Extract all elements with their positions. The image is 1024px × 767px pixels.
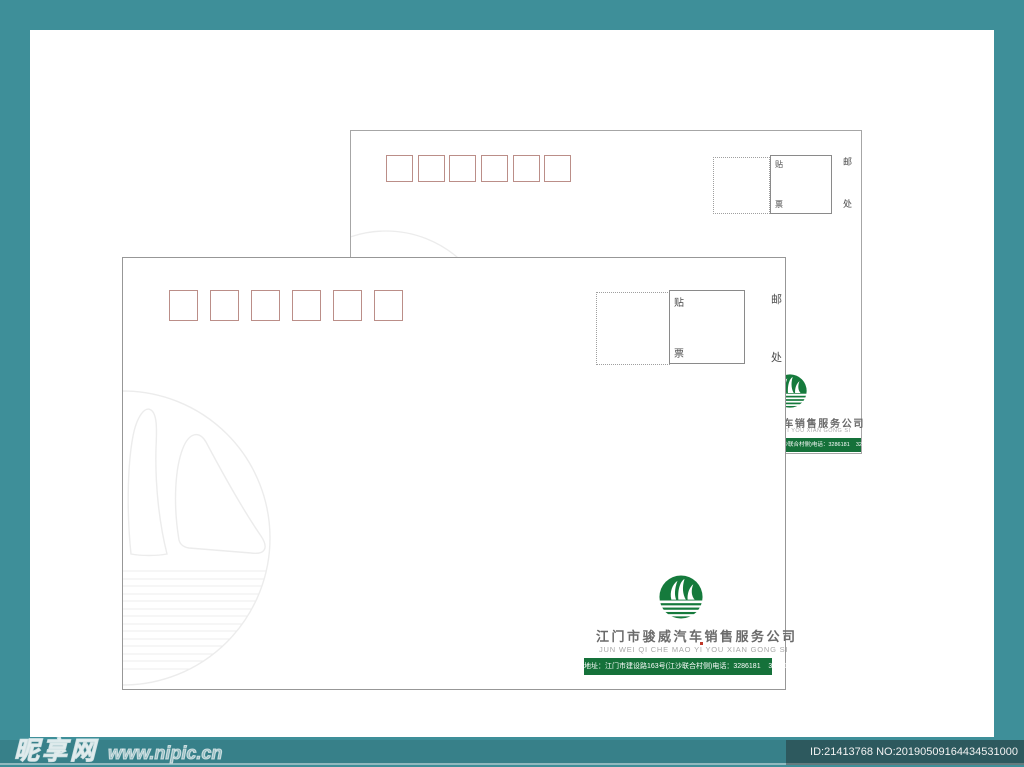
- stamp-char-you: 邮: [771, 291, 782, 307]
- company-pinyin: JUN WEI QI CHE MAO YI YOU XIAN GONG SI: [599, 645, 788, 654]
- company-logo-icon: [659, 575, 703, 619]
- stamp-char-tie: 贴: [775, 159, 783, 170]
- stamp-char-piao: 票: [775, 199, 783, 210]
- company-name: 江门市骏威汽车销售服务公司: [596, 626, 798, 645]
- address-text: 地址：江门市建设路163号(江沙联合村侧)电话：3286181 3286182: [584, 658, 772, 675]
- postal-code-box: [418, 155, 445, 182]
- postal-code-box: [544, 155, 571, 182]
- stamp-area-solid-box: 贴 票: [770, 155, 832, 214]
- watermark-url: www.nipic.cn: [108, 743, 222, 764]
- stamp-area-solid-box: 贴 票: [669, 290, 745, 364]
- stamp-char-tie: 贴: [674, 294, 684, 309]
- stamp-char-chu: 处: [843, 197, 852, 210]
- postal-code-box: [292, 290, 321, 321]
- postal-code-box: [374, 290, 403, 321]
- postal-code-box: [210, 290, 239, 321]
- postal-code-box: [333, 290, 362, 321]
- envelope-front: 贴 票 邮 处 江门市骏威汽车销售服务公司 JUN WEI QI CHE MAO…: [122, 257, 786, 690]
- address-bar: 地址：江门市建设路163号(江沙联合村侧)电话：3286181 3286182: [584, 658, 772, 675]
- image-id-badge: ID:21413768 NO:20190509164434531000: [786, 740, 1024, 765]
- watermark-brand: 昵享网: [14, 731, 98, 767]
- stamp-char-you: 邮: [843, 155, 852, 168]
- stamp-area-dashed-box: [596, 292, 670, 365]
- nipic-watermark: 昵享网 www.nipic.cn: [14, 731, 222, 767]
- preview-canvas: 贴 票 邮 处 江门市骏威汽车销售服务公司 JUN WEI QI CHE MAO…: [30, 30, 994, 737]
- stamp-char-piao: 票: [674, 345, 684, 360]
- postal-code-box: [386, 155, 413, 182]
- postal-code-box: [251, 290, 280, 321]
- postal-code-box: [513, 155, 540, 182]
- postal-code-box: [169, 290, 198, 321]
- postal-code-box: [449, 155, 476, 182]
- stamp-char-chu: 处: [771, 349, 782, 365]
- postal-code-box: [481, 155, 508, 182]
- stamp-area-dashed-box: [713, 157, 770, 214]
